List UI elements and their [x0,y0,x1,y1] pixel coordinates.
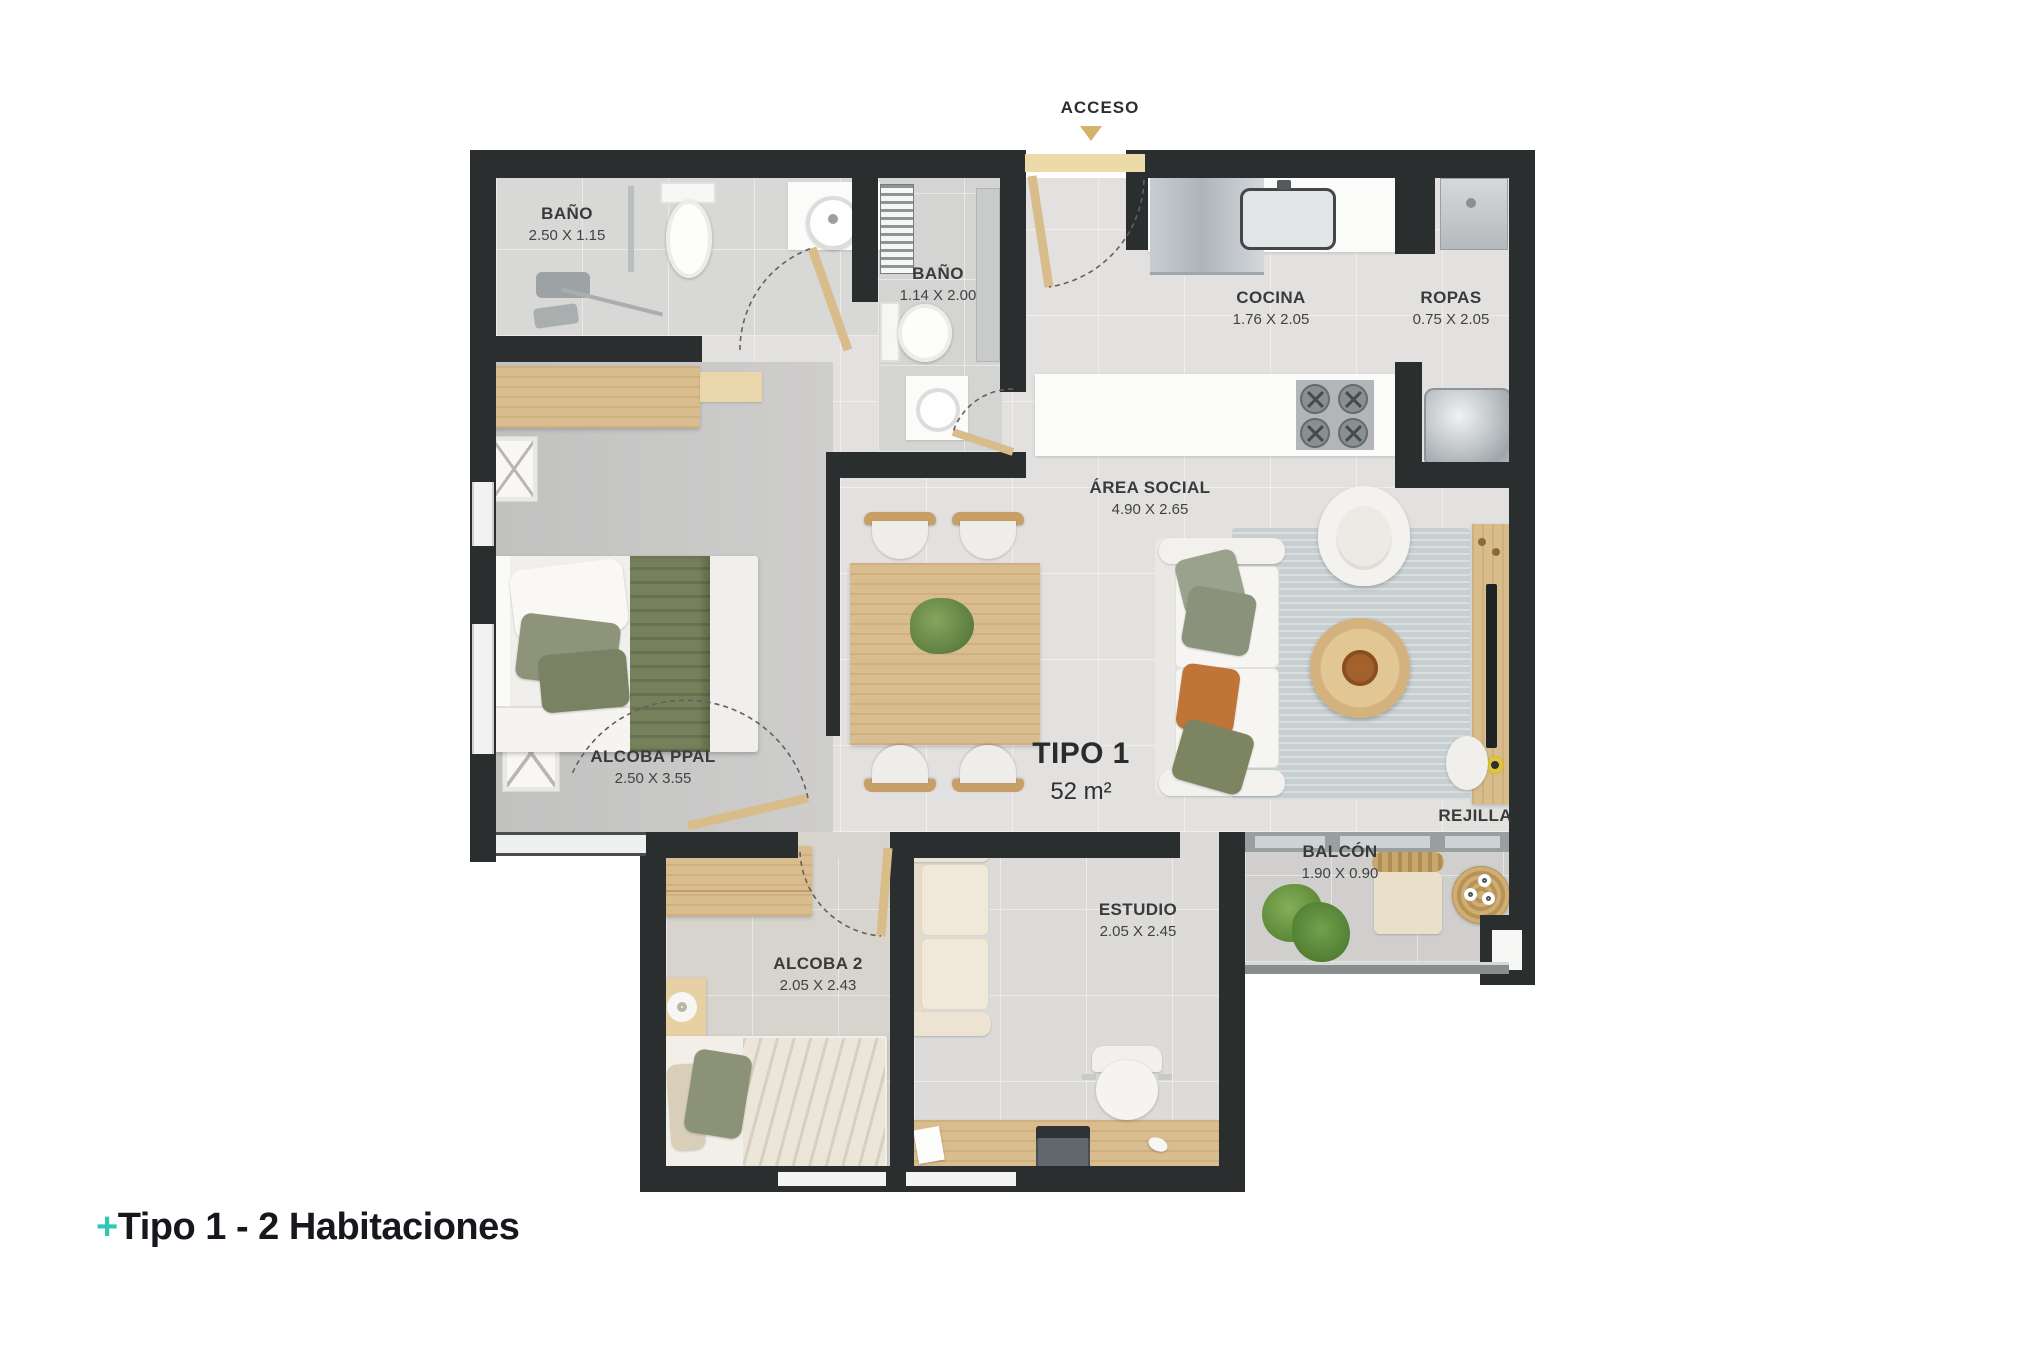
faucet-icon [828,214,838,224]
study-sofa [905,838,991,1036]
access-text: ACCESO [990,98,1210,118]
wall [640,832,666,1192]
access-arrow-icon [1080,126,1102,141]
room-label-bano-ppal: BAÑO 2.50 X 1.15 [457,204,677,245]
room-label-alcoba-ppal: ALCOBA PPAL 2.50 X 3.55 [543,747,763,788]
sofa-armrest [905,1012,991,1036]
chair-armrest [1158,1074,1172,1080]
room-name: BAÑO [457,204,677,224]
entrance-threshold [1025,154,1145,172]
basin-drain-icon [1466,198,1476,208]
room-name: ROPAS [1341,288,1561,308]
chair-armrest [1082,1074,1096,1080]
room-dims: 4.90 X 2.65 [1040,501,1260,519]
burner-icon [1338,418,1368,448]
room-dims: 1.90 X 0.90 [1230,865,1450,883]
console-knob-icon [1492,548,1500,556]
paper-icon [913,1126,945,1164]
room-label-bano-2: BAÑO 1.14 X 2.00 [828,264,1048,305]
wall [496,336,702,362]
window [906,1172,1016,1186]
window [472,624,494,754]
dining-chair [864,742,936,792]
room-dims: 0.75 X 2.05 [1341,311,1561,329]
burner-icon [1300,384,1330,414]
console-knob-icon [1478,538,1486,546]
room-label-balcon: BALCÓN 1.90 X 0.90 [1230,842,1450,883]
plan-type-name: TIPO 1 [971,736,1191,772]
toilet-2-icon [898,304,952,362]
pillow [538,648,631,713]
room-dims: 1.14 X 2.00 [828,287,1048,305]
room-dims: 2.05 X 2.43 [708,977,928,995]
armchair-seat [1336,506,1392,570]
wall [640,832,798,858]
tv-icon [1486,584,1497,748]
duvet [743,1038,885,1166]
room-name: BALCÓN [1230,842,1450,862]
wall-partition [826,470,840,736]
window-wall [496,832,646,856]
bed-runner [630,556,710,752]
burner-icon [1338,384,1368,414]
dining-table [850,563,1040,745]
dining-chair [952,512,1024,562]
room-name: ESTUDIO [1028,900,1248,920]
balcony-railing [1245,962,1509,974]
room-label-alcoba-2: ALCOBA 2 2.05 X 2.43 [708,954,928,995]
cup-icon [1482,892,1495,905]
stove-icon [1296,380,1374,450]
acceso-label: ACCESO [990,98,1210,118]
caption: +Tipo 1 - 2 Habitaciones [96,1206,519,1249]
lamp-icon [667,992,697,1022]
linen-shelf-icon [880,184,914,274]
room-label-ropas: ROPAS 0.75 X 2.05 [1341,288,1561,329]
dining-chair [864,512,936,562]
window [778,1172,886,1186]
wall [1219,832,1245,1192]
nightstand [490,436,538,502]
wall-duct [1395,150,1435,254]
cup-icon [1478,874,1491,887]
room-name: ALCOBA PPAL [543,747,763,767]
caption-plus-icon: + [96,1206,118,1248]
plant-icon [1292,902,1350,962]
office-chair [1082,1046,1172,1128]
sofa-cushion [921,938,989,1010]
pouf [1446,736,1488,790]
floor-plan: BAÑO 2.50 X 1.15 BAÑO 1.14 X 2.00 COCINA… [0,0,2032,1355]
wall [1509,150,1535,980]
room-name: ALCOBA 2 [708,954,928,974]
dresser-shelf [700,372,762,402]
wall [890,832,914,1192]
decor-yellow-icon [1486,756,1504,774]
toilet-2-tank-icon [880,302,900,362]
window [472,482,494,546]
pillow [1180,585,1258,658]
room-name: ÁREA SOCIAL [1040,478,1260,498]
caption-text: Tipo 1 - 2 Habitaciones [118,1206,520,1248]
utility-basin-icon [1440,178,1508,250]
room-dims: 2.05 X 2.45 [1028,923,1248,941]
plan-type-area: 52 m² [971,778,1191,807]
room-label-area-social: ÁREA SOCIAL 4.90 X 2.65 [1040,478,1260,519]
kitchen-sink-icon [1240,188,1336,250]
burner-icon [1300,418,1330,448]
room-dims: 2.50 X 3.55 [543,770,763,788]
wardrobe-divider [660,890,812,892]
sheet-fold [496,706,630,752]
bed-double [496,556,758,752]
wall [826,452,1026,478]
laptop-icon [1036,1126,1090,1170]
cup-icon [1464,888,1477,901]
chair-seat [1096,1060,1158,1120]
coffee-table-tray-icon [1342,650,1378,686]
sofa-cushion [921,864,989,936]
wall [914,832,1180,858]
dresser [492,366,700,428]
room-dims: 2.50 X 1.15 [457,227,677,245]
wall [1395,362,1422,478]
glass-panel [1445,836,1500,848]
rejilla-label: REJILLA [1312,806,1512,826]
armchair [1318,486,1410,586]
kitchen-faucet-icon [1277,180,1291,190]
room-label-estudio: ESTUDIO 2.05 X 2.45 [1028,900,1248,941]
sink-2-icon [916,388,960,432]
washer-icon [1424,388,1512,468]
bed-single [655,1036,887,1168]
wall [1145,150,1535,178]
wall [470,150,1025,178]
annotation-text: REJILLA [1312,806,1512,826]
study-door-floor [1180,832,1219,858]
plan-title: TIPO 1 52 m² [971,736,1191,807]
room-name: BAÑO [828,264,1048,284]
wall [1395,462,1520,488]
